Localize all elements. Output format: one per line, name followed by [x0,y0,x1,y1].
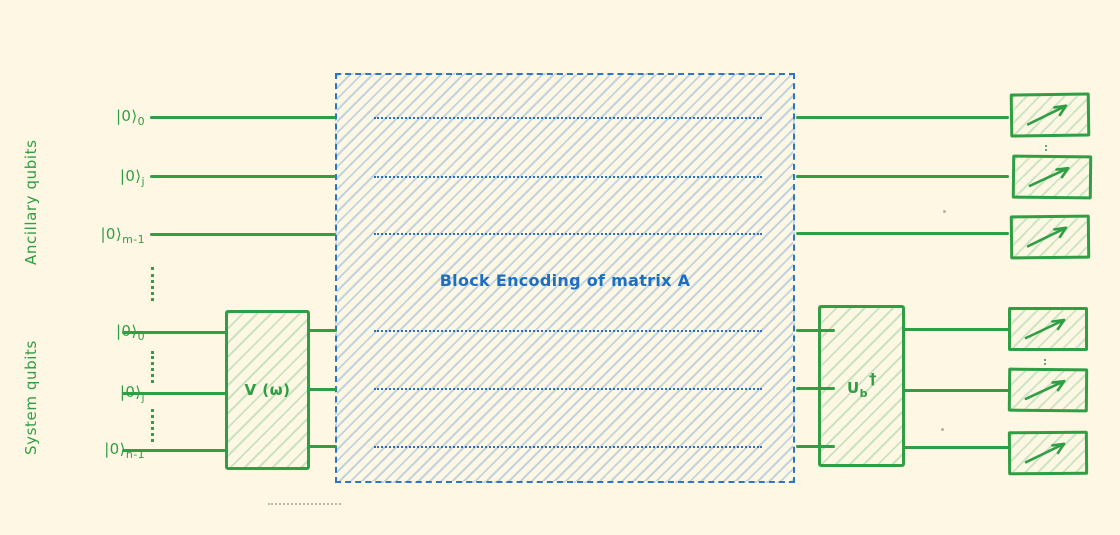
measurement-ancillary-1 [1012,155,1092,200]
system-wire-1 [122,392,228,395]
measurement-arrow-icon [1013,372,1083,409]
block-to-ub-stub-2 [796,445,835,448]
stray-dot-1 [941,428,944,431]
v-to-block-stub-2 [308,445,337,448]
ancillary-wire-1 [150,175,336,178]
ub-to-meter-wire-2 [903,446,1009,449]
dagger-symbol: † [869,370,877,388]
measurement-arrow-icon [1017,159,1087,196]
block-to-ub-stub-0 [796,329,835,332]
system-wire-0 [122,331,228,334]
system-ket-1: |0⟩j [53,382,145,408]
ancillary-ket-2: |0⟩m-1 [53,224,145,250]
faint-dotted-line [268,503,341,505]
ub-to-meter-wire-0 [903,328,1009,331]
ancillary-wire-0 [150,116,336,119]
ancillary-qubits-group-label: Ancillary qubits [22,138,40,266]
system-wire-2 [122,449,228,452]
ket-symbol: |0⟩ [116,107,138,125]
block-encoding-box: Block Encoding of matrix A [335,73,795,483]
block-wire-dotted-0 [374,117,762,119]
ellipsis-dots-1 [151,351,154,383]
ub-to-meter-wire-1 [903,389,1009,392]
ellipsis-dots-0 [151,267,154,301]
block-to-ub-stub-1 [796,387,835,390]
ket-symbol: |0⟩ [100,225,122,243]
quantum-circuit-diagram: Ancillary qubits System qubits |0⟩0 |0⟩j… [0,0,1120,535]
ancillary-wire-right-2 [796,232,1009,235]
block-wire-dotted-2 [374,233,762,235]
measurement-arrow-icon [1015,219,1085,256]
stray-tick-0 [1045,145,1047,151]
measurement-arrow-icon [1015,97,1085,134]
measurement-system-2 [1008,431,1088,476]
ket-subscript: 0 [138,115,145,128]
measurement-ancillary-2 [1010,215,1090,260]
ancillary-ket-0: |0⟩0 [53,106,145,132]
system-ket-2: |0⟩n-1 [53,439,145,465]
block-encoding-title: Block Encoding of matrix A [400,271,730,290]
block-wire-dotted-3 [374,330,762,332]
ket-subscript: m-1 [122,233,145,246]
block-wire-dotted-1 [374,176,762,178]
measurement-arrow-icon [1013,311,1083,347]
system-qubits-group-label: System qubits [22,340,40,456]
measurement-system-0 [1008,307,1088,351]
ub-base: U [847,379,860,397]
ket-symbol: |0⟩ [120,167,142,185]
v-to-block-stub-1 [308,388,337,391]
block-wire-dotted-5 [374,446,762,448]
measurement-ancillary-0 [1010,92,1091,137]
ancillary-ket-1: |0⟩j [53,166,145,192]
ub-dagger-gate-label: Ub† [847,373,876,400]
ket-subscript: j [142,175,145,188]
system-ket-0: |0⟩0 [53,321,145,347]
ancillary-wire-2 [150,233,336,236]
ellipsis-dots-2 [151,409,154,442]
stray-tick-1 [1044,359,1046,365]
measurement-arrow-icon [1013,435,1083,471]
ancillary-wire-right-0 [796,116,1009,119]
block-wire-dotted-4 [374,388,762,390]
v-omega-gate: V (ω) [225,310,310,470]
stray-dot-0 [943,210,946,213]
measurement-system-1 [1008,368,1088,413]
v-to-block-stub-0 [308,329,337,332]
ub-subscript: b [860,387,868,400]
ancillary-wire-right-1 [796,175,1009,178]
v-omega-gate-label: V (ω) [244,381,290,399]
